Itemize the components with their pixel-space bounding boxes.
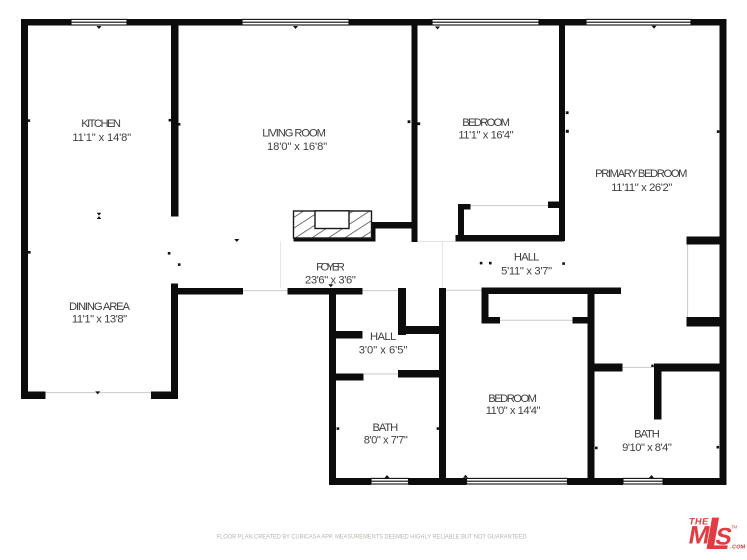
svg-text:3'0" x 6'5": 3'0" x 6'5"	[359, 345, 408, 357]
svg-text:BATH: BATH	[634, 429, 660, 441]
svg-text:18'0" x 16'8": 18'0" x 16'8"	[267, 141, 327, 153]
svg-text:.COM: .COM	[730, 545, 746, 551]
svg-text:BEDROOM: BEDROOM	[488, 393, 537, 405]
svg-text:BEDROOM: BEDROOM	[462, 117, 510, 129]
svg-text:HALL: HALL	[370, 331, 396, 343]
svg-text:23'6" x 3'6": 23'6" x 3'6"	[305, 275, 356, 287]
svg-text:5'11" x 3'7": 5'11" x 3'7"	[501, 265, 552, 277]
svg-text:8'0" x 7'7": 8'0" x 7'7"	[364, 435, 408, 447]
svg-text:11'11" x 26'2": 11'11" x 26'2"	[611, 182, 672, 194]
svg-text:BATH: BATH	[373, 422, 399, 434]
svg-text:DINING AREA: DINING AREA	[69, 301, 131, 313]
svg-text:11'1" x 13'8": 11'1" x 13'8"	[72, 314, 127, 326]
svg-text:TM: TM	[730, 525, 738, 530]
svg-text:11'0" x 14'4": 11'0" x 14'4"	[486, 405, 541, 417]
svg-text:HALL: HALL	[514, 251, 540, 263]
svg-text:FOYER: FOYER	[316, 261, 345, 273]
svg-text:PRIMARY BEDROOM: PRIMARY BEDROOM	[595, 168, 687, 180]
svg-text:11'1" x 16'4": 11'1" x 16'4"	[458, 130, 513, 142]
svg-text:LIVING ROOM: LIVING ROOM	[262, 128, 326, 140]
svg-text:11'1" x 14'8": 11'1" x 14'8"	[72, 132, 131, 144]
svg-text:9'10" x 8'4": 9'10" x 8'4"	[622, 442, 672, 454]
svg-text:FLOOR PLAN CREATED BY CUBICASA: FLOOR PLAN CREATED BY CUBICASA APP. MEAS…	[217, 533, 527, 540]
svg-text:KITCHEN: KITCHEN	[81, 118, 121, 130]
